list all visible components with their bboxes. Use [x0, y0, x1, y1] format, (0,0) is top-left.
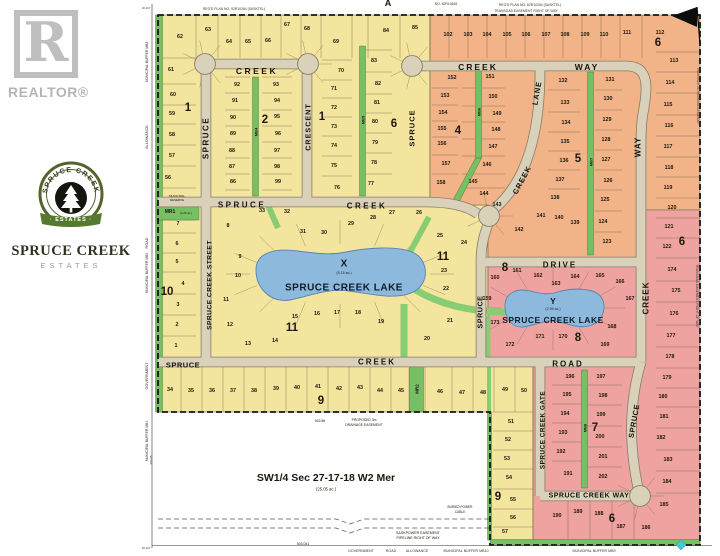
lot-number: 40 [294, 385, 300, 391]
lot-number: 166 [616, 279, 625, 285]
lot-number: 99 [275, 179, 281, 185]
spruce-creek-logo: SPRUCE CREEK · ESTATES · SPRUCE CREEK ES… [0, 160, 142, 270]
lot-number: 19 [378, 319, 384, 325]
cul-de-sac [402, 56, 423, 77]
block-number: 9 [495, 491, 501, 503]
lot-number: 16 [314, 311, 320, 317]
lot-number: 120 [668, 205, 677, 211]
lot-number: 194 [561, 411, 570, 417]
street-label: SPRUCE CREEK GATE [540, 391, 547, 470]
lot-number: 43 [357, 385, 363, 391]
lot-number: 161 [513, 268, 522, 274]
lot-number: 14 [272, 338, 278, 344]
lot-number: 141 [537, 213, 546, 219]
margin-label: ALLOWANCE [406, 549, 429, 553]
lot-number: 167 [626, 296, 635, 302]
reserve-label: MR2 [415, 384, 420, 394]
lake-id: X [341, 259, 348, 270]
lot-number: 11 [223, 297, 229, 303]
lot-number: 49 [502, 387, 508, 393]
lot-number: 8 [227, 223, 230, 229]
brand-name: SPRUCE CREEK [0, 243, 142, 260]
lot-number: 73 [331, 124, 337, 130]
lot-number: 28 [370, 215, 376, 221]
lot-number: 126 [604, 178, 613, 184]
cul-de-sac [298, 54, 319, 75]
margin-label: 303.05 [149, 455, 153, 465]
lot-number: 143 [493, 202, 502, 208]
lot-number: 114 [666, 80, 675, 86]
note-label: DRAINAGE EASEMENT [345, 423, 382, 427]
lot-number: 182 [657, 435, 666, 441]
lot-number: 64 [226, 39, 232, 45]
lot-number: 115 [664, 102, 673, 108]
lot-number: 136 [560, 158, 569, 164]
realtor-r-icon: R [14, 10, 78, 78]
street-label: CREEK [642, 281, 651, 314]
lot-number: 121 [665, 224, 674, 230]
lot-number: 106 [522, 32, 531, 38]
lot-number: 150 [489, 94, 498, 100]
lot-number: 51 [508, 419, 514, 425]
lot-number: 52 [505, 437, 511, 443]
lot-number: 61 [168, 67, 174, 73]
lot-number: 123 [603, 239, 612, 245]
margin-label: MUNICIPAL BUFFER MB9 [573, 549, 616, 553]
lot-number: 155 [438, 126, 447, 132]
lot-number: 180 [659, 394, 668, 400]
lot-number: 55 [510, 497, 516, 503]
lot-number: 142 [515, 227, 524, 233]
reserve-label: MB7 [589, 157, 594, 166]
street-label: CREEK [458, 62, 498, 72]
lot-number: 53 [504, 456, 510, 462]
lot-number: 84 [383, 28, 389, 34]
lot-number: 68 [304, 26, 310, 32]
lot-number: 139 [571, 220, 580, 226]
street-label: SPRUCE CREEK WAY [549, 493, 630, 500]
lot-number: 71 [331, 86, 337, 92]
lot-number: 27 [389, 210, 395, 216]
lot-number: 118 [665, 165, 674, 171]
lot-number: 59 [169, 111, 175, 117]
block-number: 7 [592, 422, 598, 434]
lot-number: 135 [561, 139, 570, 145]
lot-number: 26 [416, 210, 422, 216]
lot-number: 149 [493, 111, 502, 117]
lot-number: 79 [372, 140, 378, 146]
lot-number: 5 [176, 259, 179, 265]
lot-number: 20 [424, 336, 430, 342]
lot-number: 153 [441, 93, 450, 99]
brand-subtitle: ESTATES [0, 261, 142, 270]
cul-de-sac [479, 206, 500, 227]
spruce-creek-badge-icon: SPRUCE CREEK · ESTATES · [23, 160, 119, 234]
lot-number: 31 [300, 229, 306, 235]
lake-id: Y [550, 296, 556, 306]
lot-number: 76 [334, 185, 340, 191]
lot-number: 69 [333, 39, 339, 45]
block-number: 6 [391, 118, 397, 130]
lake-area: (2.95 ac.) [545, 307, 560, 311]
lot-number: 200 [596, 434, 605, 440]
street-label: WAY [634, 137, 643, 158]
street-label: SPRUCE [476, 296, 485, 329]
lot-number: 108 [561, 32, 570, 38]
lot-number: 168 [608, 324, 617, 330]
block-number: 10 [161, 286, 174, 298]
lot-number: 195 [563, 392, 572, 398]
lot-number: 148 [492, 127, 501, 133]
lot-number: 37 [230, 388, 236, 394]
lot-number: 72 [331, 105, 337, 111]
street-label: SPRUCE [202, 117, 211, 159]
lot-number: 130 [604, 96, 613, 102]
lot-number: 125 [601, 197, 610, 203]
lot-number: 77 [368, 181, 374, 187]
lot-number: 192 [557, 449, 566, 455]
lot-number: 184 [663, 479, 672, 485]
lot-number: 4 [182, 281, 185, 287]
lot-number: 177 [667, 333, 676, 339]
lot-number: 111 [623, 30, 631, 36]
lot-number: 15 [292, 314, 298, 320]
block-number: 5 [575, 153, 582, 165]
lot-number: 109 [581, 32, 590, 38]
block-number: 4 [455, 125, 462, 137]
lot-number: 131 [606, 77, 615, 83]
lot-number: 134 [562, 120, 571, 126]
lot-number: 199 [597, 412, 606, 418]
note-label: 502.86 [315, 419, 325, 423]
lot-number: 24 [461, 240, 467, 246]
lot-number: 57 [169, 153, 175, 159]
lot-number: 186 [642, 525, 651, 531]
lot-number: 151 [486, 74, 495, 80]
lot-number: 85 [412, 25, 418, 31]
lot-number: 54 [506, 475, 512, 481]
margin-label: ALLOWANCE [145, 125, 149, 149]
lot-number: 197 [597, 374, 606, 380]
lot-number: 88 [229, 148, 235, 154]
lot-number: 171 [536, 334, 545, 340]
lot-number: 133 [561, 100, 570, 106]
lot-number: 70 [338, 68, 344, 74]
lot-number: 93 [273, 82, 279, 88]
lot-number: 98 [274, 164, 280, 170]
lot-number: 173 [491, 320, 500, 326]
lot-number: 189 [574, 509, 583, 515]
lot-number: 117 [664, 144, 673, 150]
lot-number: 9 [239, 254, 242, 260]
lot-number: 45 [398, 388, 404, 394]
lake-name: SPRUCE CREEK LAKE [502, 315, 604, 325]
lot-number: 105 [503, 32, 512, 38]
lot-number: 144 [480, 191, 489, 197]
margin-label: NO. 62R10816 [435, 2, 458, 6]
lot-number: 2 [176, 322, 179, 328]
lot-number: 162 [534, 273, 543, 279]
block-number: 1 [319, 111, 326, 123]
lot-number: 96 [275, 131, 281, 137]
pipeline-easement [158, 519, 489, 524]
lot-number: 103 [464, 32, 473, 38]
block-number: 8 [502, 262, 509, 274]
margin-label: ROAD [145, 237, 149, 248]
lot-number: 6 [176, 241, 179, 247]
lot-number: 13 [245, 341, 251, 347]
lot-number: 185 [660, 502, 669, 508]
lot-number: 170 [559, 334, 568, 340]
lot-number: 36 [209, 388, 215, 394]
reserve-label: MB8 [583, 423, 588, 432]
reserve-label: MB4 [254, 127, 259, 136]
lot-number: 163 [552, 281, 561, 287]
lot-number: 63 [205, 27, 211, 33]
street-label: CREEK [347, 202, 388, 211]
street-label: CREEK [236, 66, 278, 76]
lot-number: 193 [559, 430, 568, 436]
cul-de-sac [195, 54, 216, 75]
lot-number: 181 [660, 414, 669, 420]
lot-number: 58 [169, 132, 175, 138]
lake-area: (5.15 ac.) [336, 271, 351, 275]
note-label: PROPOSED 3m [352, 418, 377, 422]
lake-name: SPRUCE CREEK LAKE [285, 283, 403, 294]
lot-number: 158 [437, 180, 446, 186]
block-number: 8 [575, 332, 582, 344]
reserve-label: MB5 [361, 115, 366, 124]
lot-number: 90 [230, 115, 236, 121]
lot-number: 47 [459, 390, 465, 396]
lot-number: 104 [483, 32, 492, 38]
note-label: 503.041 [297, 542, 309, 546]
margin-label: MUNICIPAL BUFFER MB1 [145, 421, 149, 462]
lot-number: 34 [167, 387, 173, 393]
lot-number: 116 [665, 123, 674, 129]
street-label: SPRUCE [218, 201, 266, 210]
lot-number: 169 [601, 342, 610, 348]
lot-number: 81 [374, 100, 380, 106]
lot-number: 190 [553, 513, 562, 519]
lot-number: 42 [336, 386, 342, 392]
margin-label: GOVERNMENT [145, 362, 149, 390]
lot-number: 7 [177, 221, 180, 227]
lot-number: 196 [566, 374, 575, 380]
reserve-label: MR1 [165, 209, 176, 215]
lot-number: 60 [170, 92, 176, 98]
lot-number: 29 [348, 221, 354, 227]
lot-number: 35 [188, 388, 194, 394]
lot-number: 146 [483, 162, 492, 168]
lot-number: 22 [443, 286, 449, 292]
lot-number: 3 [177, 302, 180, 308]
block-number: 6 [679, 236, 685, 248]
lot-number: 174 [668, 267, 677, 273]
lot-number: 78 [371, 160, 377, 166]
lot-number: 10 [235, 273, 241, 279]
note-label: CABLE [455, 510, 465, 514]
lot-number: 178 [666, 354, 675, 360]
street-label: DRIVE [543, 261, 577, 270]
realtor-r-letter: R [24, 16, 69, 68]
lot-number: 74 [331, 143, 337, 149]
lot-number: 82 [375, 81, 381, 87]
reserve-label: MB6 [477, 107, 482, 116]
street-label: SPRUCE CREEK STREET [207, 240, 214, 330]
block-number: 9 [318, 395, 324, 407]
lot-number: 191 [564, 471, 573, 477]
lot-number: 80 [372, 119, 378, 125]
lot-number: 62 [177, 34, 183, 40]
lot-number: 75 [331, 163, 337, 169]
lot-number: 175 [672, 288, 681, 294]
margin-label: PROPOSED 3m DRAINAGE EASEMENT [696, 68, 700, 124]
lot-number: 38 [251, 388, 257, 394]
block-number: 1 [185, 102, 192, 114]
margin-label: 20.117 [142, 546, 151, 550]
lot-number: 91 [232, 98, 238, 104]
lot-number: 160 [491, 275, 500, 281]
lot-number: 138 [551, 195, 560, 201]
lot-number: 23 [441, 268, 447, 274]
lot-number: 66 [265, 38, 271, 44]
lot-number: 39 [273, 386, 279, 392]
lot-number: 17 [334, 310, 340, 316]
note-label: BURIED POWER [448, 505, 474, 509]
street-label: CRESCENT [304, 103, 313, 151]
reserve-label: (0.29 ac.) [180, 211, 192, 215]
lot-number: 179 [663, 375, 672, 381]
lot-number: 25 [437, 233, 443, 239]
lot-number: 12 [227, 322, 233, 328]
realtor-logo: R REALTOR® [14, 10, 124, 100]
street-label: ROAD [552, 360, 584, 369]
lot-number: 56 [165, 175, 171, 181]
margin-label: MUNICIPAL BUFFER MB3 [145, 42, 149, 83]
margin-label: REG'D PLAN NO. 62R10264 (SASKTEL) [499, 3, 561, 7]
lot-number: 119 [664, 185, 673, 191]
margin-label: TRANSGAS EASEMENT RIGHT OF WAY [695, 264, 699, 328]
lot-number: 124 [599, 219, 608, 225]
lot-number: 57 [502, 529, 508, 535]
lot-number: 50 [521, 388, 527, 394]
lot-number: 176 [670, 311, 679, 317]
lot-number: 48 [480, 390, 486, 396]
lot-number: 201 [599, 454, 608, 460]
lot-number: 18 [355, 310, 361, 316]
block-number: 6 [609, 513, 615, 525]
lot-number: 94 [274, 98, 280, 104]
lot-number: 156 [438, 141, 447, 147]
street-label: WAY [575, 62, 600, 72]
lot-number: 87 [229, 164, 235, 170]
note-label: A [385, 0, 392, 8]
block-number: 6 [655, 37, 661, 49]
left-panel: R REALTOR® SPRUCE CREEK · [0, 0, 142, 556]
lot-number: 21 [447, 318, 453, 324]
lot-number: 127 [602, 157, 611, 163]
plat-map-page: 6263646566676869616059585756929190898887… [0, 0, 720, 556]
street-label: SPRUCE [408, 109, 417, 146]
lot-number: 41 [315, 384, 321, 390]
block-number: 2 [262, 114, 268, 126]
block-number: 11 [286, 322, 299, 334]
realtor-label: REALTOR® [8, 84, 124, 100]
lot-number: 97 [274, 148, 280, 154]
lot-number: 46 [437, 389, 443, 395]
lot-number: 187 [617, 524, 626, 530]
lot-number: 172 [506, 342, 515, 348]
lot-number: 95 [274, 114, 280, 120]
lot-number: 92 [234, 82, 240, 88]
badge-banner-text: · ESTATES · [50, 217, 92, 223]
street-label: SPRUCE [166, 361, 200, 370]
lot-number: 83 [371, 58, 377, 64]
lot-number: 157 [442, 161, 451, 167]
lot-number: 140 [555, 215, 564, 221]
lot-number: 110 [600, 32, 609, 38]
reserve-label: RESERVE [170, 198, 184, 202]
lot-number: 129 [603, 117, 612, 123]
lot-number: 164 [571, 274, 580, 280]
lot-number: 44 [377, 388, 383, 394]
margin-label: GOVERNMENT [348, 549, 375, 553]
lot-number: 188 [595, 511, 604, 517]
lot-number: 32 [284, 209, 290, 215]
lot-number: 154 [439, 110, 448, 116]
note-label: PIPELINE RIGHT OF WAY [396, 536, 440, 540]
lot-number: 112 [656, 30, 665, 36]
lot-number: 122 [663, 244, 672, 250]
lot-number: 145 [469, 179, 478, 185]
block-number: 11 [437, 251, 450, 263]
lot-number: 56 [510, 515, 516, 521]
lot-number: 102 [444, 32, 453, 38]
note-label: (25.05 ac.) [316, 487, 337, 492]
lot-number: 183 [664, 457, 673, 463]
margin-label: REG'D PLAN NO. 92R10264 (SASKTEL) [203, 7, 265, 11]
street-label: CREEK [358, 358, 396, 367]
lot-number: 202 [599, 474, 608, 480]
lot-number: 132 [559, 78, 568, 84]
note-label: SW1/4 Sec 27-17-18 W2 Mer [257, 472, 395, 484]
lot-number: 65 [245, 39, 251, 45]
lot-number: 137 [556, 177, 565, 183]
cul-de-sac [630, 486, 651, 507]
lot-number: 147 [489, 144, 498, 150]
margin-label: MUNICIPAL BUFFER MB10 [444, 549, 489, 553]
margin-label: ROAD [386, 549, 397, 553]
lot-number: 152 [448, 75, 457, 81]
lot-number: 128 [602, 137, 611, 143]
margin-label: 20.117 [142, 6, 151, 10]
lot-number: 30 [321, 230, 327, 236]
lot-number: 86 [230, 179, 236, 185]
margin-label: TRANSGAS EASEMENT RIGHT OF WAY [494, 9, 558, 13]
lot-number: 67 [284, 22, 290, 28]
lot-number: 165 [596, 273, 605, 279]
margin-label: MUNICIPAL BUFFER MB2 [145, 253, 149, 294]
lot-number: 198 [599, 393, 608, 399]
lot-number: 113 [670, 58, 679, 64]
lot-number: 107 [542, 32, 551, 38]
lot-number: 1 [175, 343, 178, 349]
lot-number: 89 [230, 131, 236, 137]
note-label: SASKPOWER EASEMENT [396, 531, 441, 535]
